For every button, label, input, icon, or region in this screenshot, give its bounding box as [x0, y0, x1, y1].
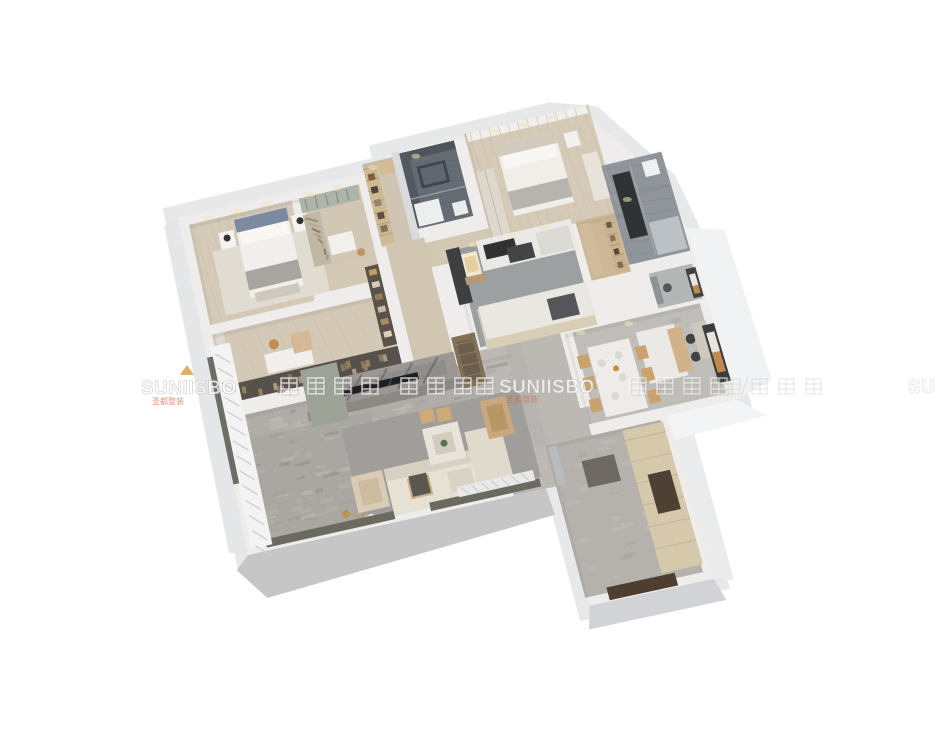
svg-text:圣都整装: 圣都整装	[152, 396, 184, 406]
svg-text:SUNIISBO: SUNIISBO	[141, 378, 237, 399]
svg-text:圣都整装: 圣都整装	[506, 394, 538, 404]
svg-text:SU: SU	[908, 377, 935, 398]
